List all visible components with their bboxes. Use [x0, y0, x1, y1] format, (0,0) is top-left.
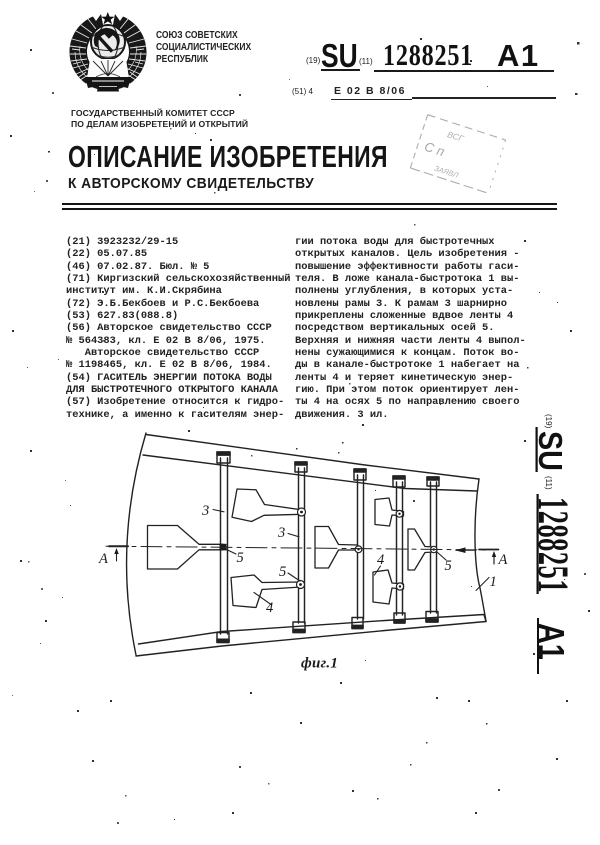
svg-text:(11): (11) [544, 476, 553, 490]
svg-text:(19): (19) [544, 414, 553, 429]
